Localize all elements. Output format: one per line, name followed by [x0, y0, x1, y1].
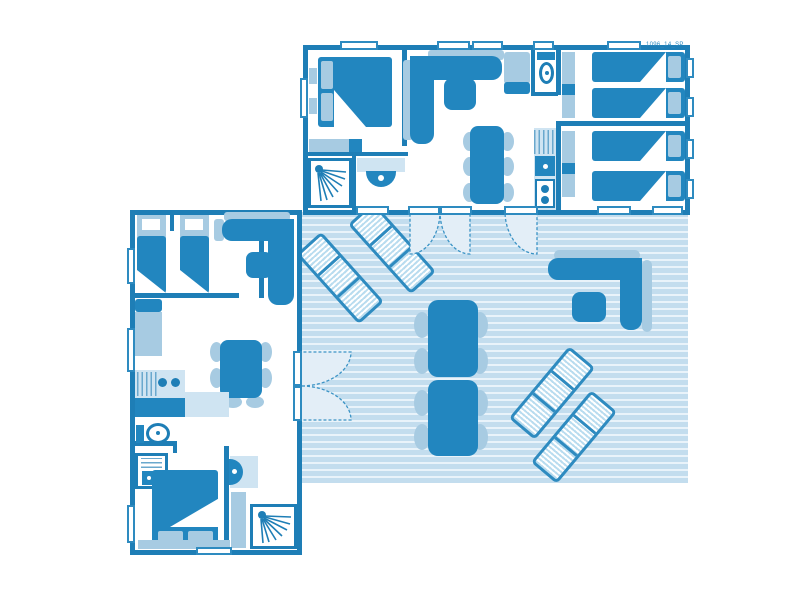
window [686, 139, 694, 159]
terrace-door-leaf [408, 206, 440, 215]
window [686, 58, 694, 78]
window [597, 206, 631, 215]
door-swing-arcs [0, 0, 800, 600]
terrace-door-leaf [504, 206, 538, 215]
window [127, 505, 135, 543]
window [533, 41, 554, 50]
window [356, 206, 389, 215]
window [472, 41, 503, 50]
window [652, 206, 683, 215]
window [340, 41, 378, 50]
window [686, 97, 694, 117]
floor-plan: 1096_14_SP [0, 0, 800, 600]
door-arc [301, 352, 351, 386]
terrace-door-leaf [440, 206, 472, 215]
window [300, 78, 308, 118]
window [607, 41, 641, 50]
door-arc [505, 211, 537, 254]
terrace-door-leaf [293, 386, 302, 421]
window [196, 547, 232, 555]
door-arc [440, 211, 470, 254]
plan-reference-label: 1096_14_SP [646, 42, 684, 48]
door-arc [301, 386, 351, 420]
window [686, 179, 694, 199]
window [437, 41, 470, 50]
terrace-door-leaf [293, 351, 302, 386]
window [127, 328, 135, 372]
door-arc [410, 211, 440, 254]
window [127, 248, 135, 284]
